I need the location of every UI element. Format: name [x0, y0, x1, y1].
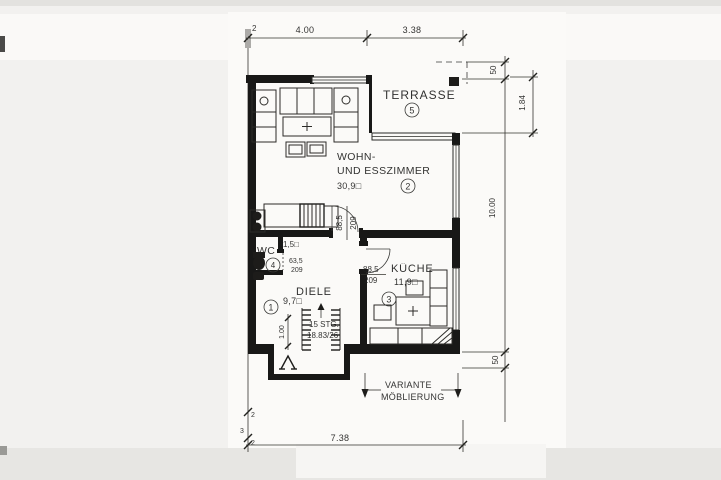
terrace-column: [449, 77, 459, 86]
room-number-terrasse-value: 5: [409, 106, 414, 116]
door-dim-wc-height: 209: [291, 267, 303, 274]
hall-width-label: 1.00: [279, 325, 286, 339]
room-number-wohn-value: 2: [405, 182, 410, 192]
room-area-diele: 9,7□: [283, 296, 302, 306]
door-dim-wc-width: 63,5: [289, 258, 303, 265]
room-label-wc: WC: [257, 245, 275, 257]
dim-right-overhang-bottom: 50: [491, 355, 500, 364]
door-dim-kitchen-width: 88,5: [363, 265, 379, 274]
stove-plate: [253, 223, 262, 232]
sink: [253, 272, 264, 280]
stove-plate: [253, 212, 262, 221]
room-area-kueche: 11,9□: [394, 277, 418, 287]
door-dim-living-width: 88,5: [335, 215, 344, 231]
note-variante-line1: VARIANTE: [385, 380, 432, 390]
dim-top-offset: 2: [252, 24, 257, 33]
dim-house-depth: 10.00: [488, 197, 497, 218]
dim-bottom-small-b: 3: [240, 428, 244, 435]
room-label-terrasse: TERRASSE: [383, 88, 456, 102]
stairs-label-line2: 18.83/26: [307, 331, 339, 340]
door-dim-living-height: 209: [349, 216, 358, 230]
floor-plan-page: 1.00 2 4.00 3.38 TERRASSE 5 WOHN- UND ES…: [0, 0, 721, 480]
toilet: [253, 256, 265, 270]
room-area-wohn: 30,9□: [337, 181, 362, 191]
room-label-kueche: KÜCHE: [391, 263, 434, 275]
floor-plan-drawing: 1.00 2 4.00 3.38 TERRASSE 5 WOHN- UND ES…: [0, 0, 721, 480]
dim-right-overhang-top: 50: [489, 65, 498, 74]
dim-bottom-small-c: 2: [251, 440, 255, 447]
room-area-wc: 1,5□: [283, 240, 299, 249]
dim-top-b: 3.38: [403, 25, 422, 35]
dim-terrace-depth: 1.84: [518, 95, 527, 111]
note-variante-line2: MÖBLIERUNG: [381, 392, 445, 402]
room-number-diele-value: 1: [268, 303, 273, 313]
room-label-wohn-line2: UND ESSZIMMER: [337, 165, 430, 177]
room-label-wohn-line1: WOHN-: [337, 151, 376, 163]
dim-bottom-small-a: 2: [251, 412, 255, 419]
dim-total-width: 7.38: [331, 433, 350, 443]
door-dim-kitchen-height: 209: [364, 276, 378, 285]
room-number-wc-value: 4: [271, 261, 276, 270]
room-number-kueche-value: 3: [386, 295, 391, 305]
stairs-label-line1: 15 STG.: [309, 320, 339, 329]
dim-top-a: 4.00: [296, 25, 315, 35]
